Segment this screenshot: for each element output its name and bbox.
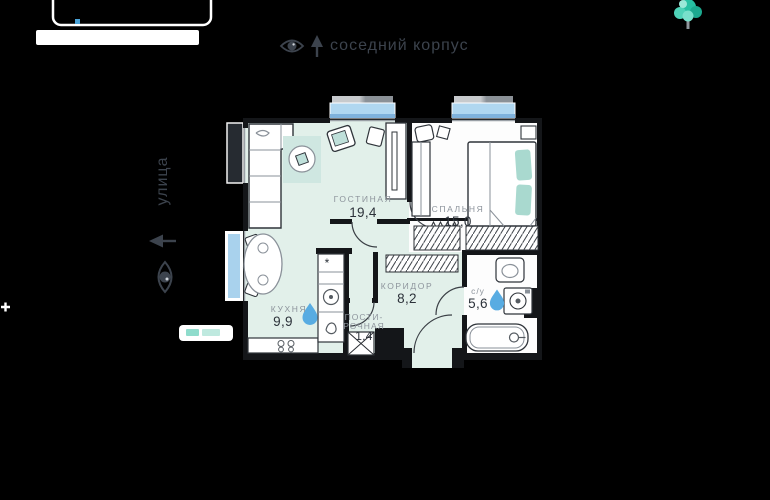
- washing-machine-icon: [504, 288, 532, 314]
- kitchen-counter: [248, 338, 318, 353]
- tree-icon: [674, 0, 702, 29]
- window-living-top: [330, 96, 395, 121]
- tv-unit-icon: [386, 123, 406, 199]
- eye-icon: [281, 41, 303, 52]
- window-kitchen-left: [225, 231, 245, 301]
- room-name-bathroom: с/у: [448, 286, 508, 296]
- room-area-corridor: 8,2: [357, 291, 457, 306]
- pillow: [514, 148, 533, 181]
- floor-plan-canvas: [0, 0, 770, 500]
- entry-step: [412, 355, 452, 368]
- room-area-bathroom: 5,6: [448, 296, 508, 311]
- window-living-left: [227, 123, 243, 183]
- neighbor-building-annotation: соседний корпус: [330, 37, 469, 55]
- site-building-strip: [36, 30, 199, 45]
- eye-icon-left: [159, 262, 172, 292]
- viewer-canvas: соседний корпус улица ГОСТИНАЯ 19,4 СПАЛ…: [0, 0, 770, 500]
- window-bedroom-top: [452, 96, 515, 121]
- toilet-icon: [496, 258, 524, 282]
- street-annotation: улица: [154, 125, 172, 237]
- site-car: [179, 325, 233, 341]
- arrow-up-icon: [311, 35, 323, 57]
- nightstand-icon: [521, 126, 536, 139]
- room-area-kitchen: 9,9: [233, 314, 333, 329]
- room-area-bedroom: 15,0: [408, 214, 508, 229]
- bathtub-icon: [466, 324, 528, 351]
- room-name-bedroom: СПАЛЬНЯ: [398, 204, 518, 214]
- site-position-marker: [75, 19, 80, 24]
- rug: [283, 136, 321, 183]
- site-plus-mark: [1, 303, 10, 312]
- fridge-symbol: *: [320, 256, 334, 270]
- room-area-laundry: 1,4: [334, 329, 394, 343]
- room-name-living: ГОСТИНАЯ: [303, 194, 423, 204]
- room-name-kitchen: КУХНЯ: [239, 304, 339, 314]
